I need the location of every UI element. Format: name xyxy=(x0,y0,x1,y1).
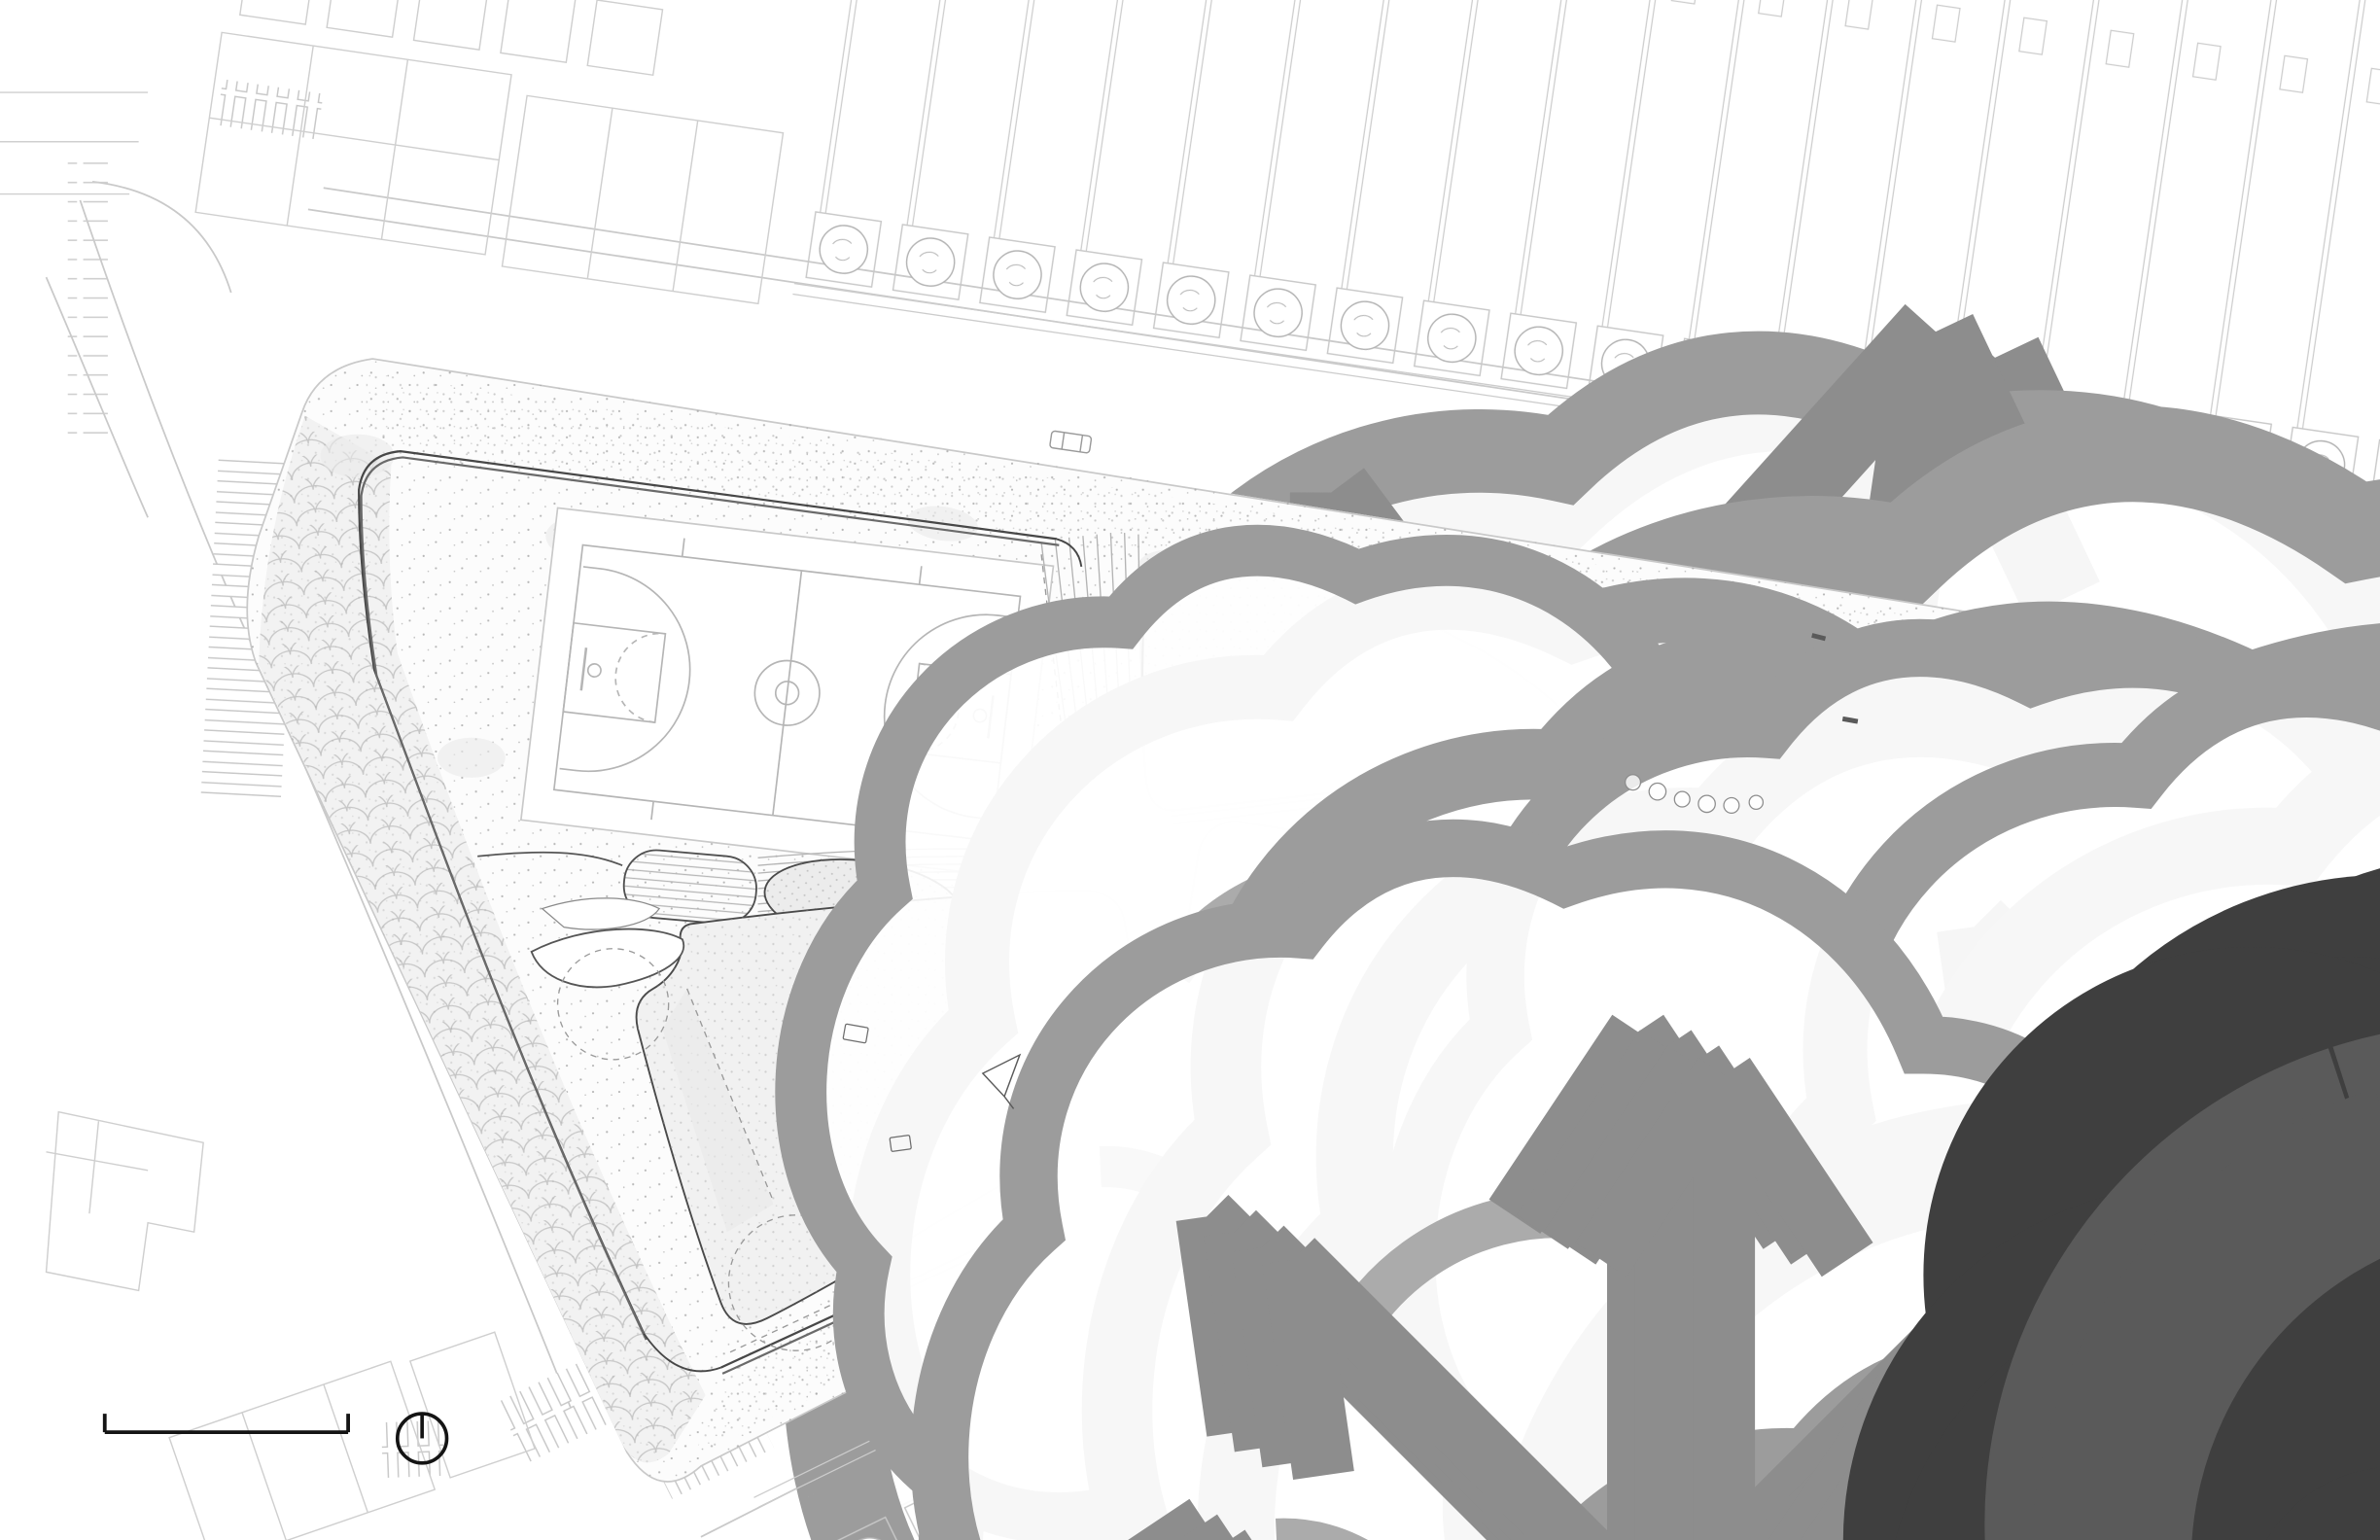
site-plan-canvas xyxy=(0,0,2380,1540)
